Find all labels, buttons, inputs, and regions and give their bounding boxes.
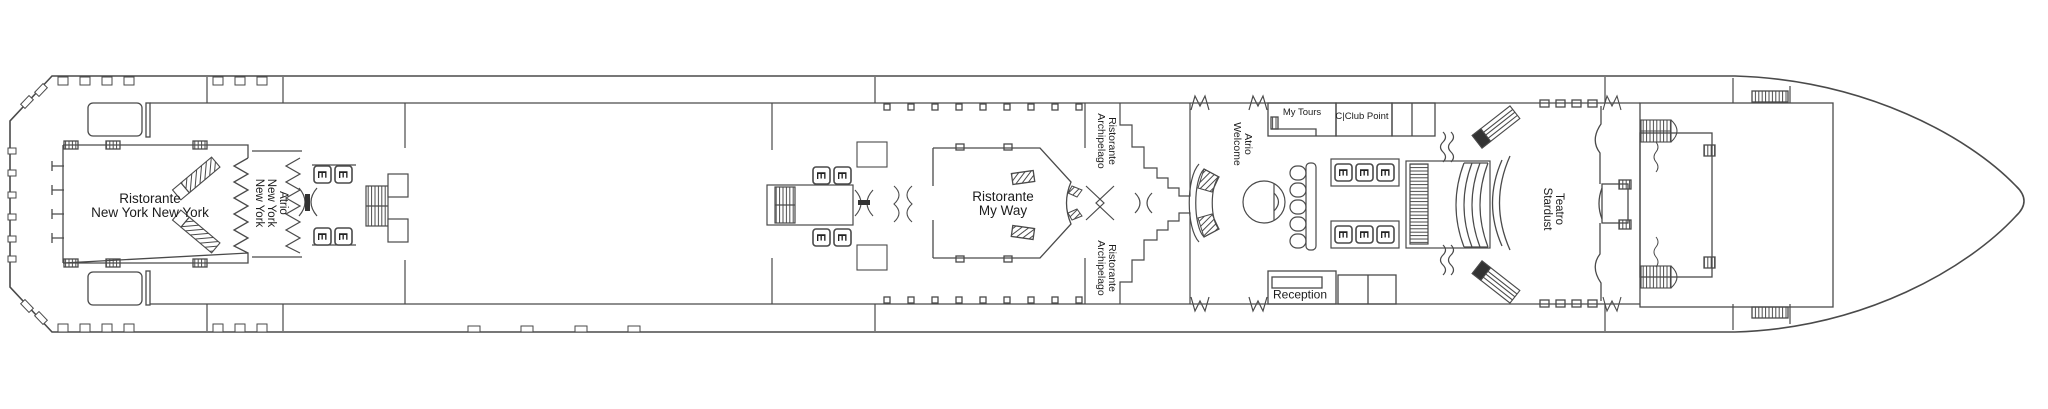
elevator-icon-label: E [336,170,350,178]
elevator-icon-label: E [1378,168,1392,176]
window-band-icon [1752,91,1788,102]
stage-curtain-icon [1654,237,1658,267]
elevator-icon-label: E [835,171,849,179]
label-ristorante-my-way: Ristorante My Way [972,190,1034,218]
elevator-icon-label: E [1357,168,1371,176]
label-c-club-point: C|Club Point [1335,112,1388,122]
label-ristorante-archipelago-upper: Ristorante Archipelago [1095,113,1117,168]
buffet-station-icon [1011,171,1034,185]
cruise-deck-plan: E E E E E E E E E E E E E E Ristorante N… [0,0,2048,409]
curved-stair-handrail [1189,164,1199,242]
seating-row-arc [1493,160,1503,246]
elevator-icon-label: E [835,233,849,241]
swing-door-icon [907,186,912,222]
fire-door-icon [1449,132,1454,162]
stern-stairwell [366,103,408,304]
label-reception: Reception [1273,289,1327,302]
label-teatro-stardust: Teatro Stardust [1541,188,1565,231]
theatre-entrance-ramps [1472,106,1520,303]
fire-door-icon [1441,132,1446,162]
theatre-stair-shaft [1406,132,1490,275]
main-staircase-icon [1410,164,1428,244]
midship-lobby-doors [855,142,912,270]
fire-door-icon [1449,245,1454,275]
midship-stairwell [767,103,853,304]
buffet-station-icon [1011,226,1034,240]
window-band-icon [1752,307,1788,318]
door-curtain-icon [299,188,305,216]
atrium-colonnade-icon [1290,163,1316,250]
stage-curtain-icon [1654,142,1658,172]
seating-row-arc [1500,156,1511,250]
elevator-icon-label: E [336,232,350,240]
fire-door-icon [1441,245,1446,275]
stage [1602,184,1628,223]
ramp-icon [1472,106,1520,148]
elevator-icon-label: E [1336,230,1350,238]
label-atrio-welcome: Atrio Welcome [1231,122,1253,166]
elevator-icon-label: E [315,170,329,178]
label-my-tours: My Tours [1283,108,1321,118]
elevator-icon-label: E [814,233,828,241]
door-curtain-icon [1135,193,1140,213]
door-curtain-icon [311,188,317,216]
label-ristorante-archipelago-lower: Ristorante Archipelago [1095,240,1117,295]
spiral-stair-icon [1641,120,1677,142]
swing-door-icon [894,186,899,222]
elevator-icon-label: E [1336,168,1350,176]
forward-deckhouse [1640,91,1833,318]
elevator-icon-label: E [1378,230,1392,238]
piano-icon [305,194,310,211]
archipelago-passage [1068,103,1190,304]
elevator-icon-label: E [1357,230,1371,238]
elevator-icon-label: E [315,232,329,240]
label-ristorante-new-york: Ristorante New York New York [91,192,209,220]
label-atrio-new-york: Atrio New York New York [253,179,289,228]
service-room [1392,103,1435,136]
door-curtain-icon [1147,193,1152,213]
elevator-icon-label: E [814,171,828,179]
ramp-icon [1472,261,1520,303]
